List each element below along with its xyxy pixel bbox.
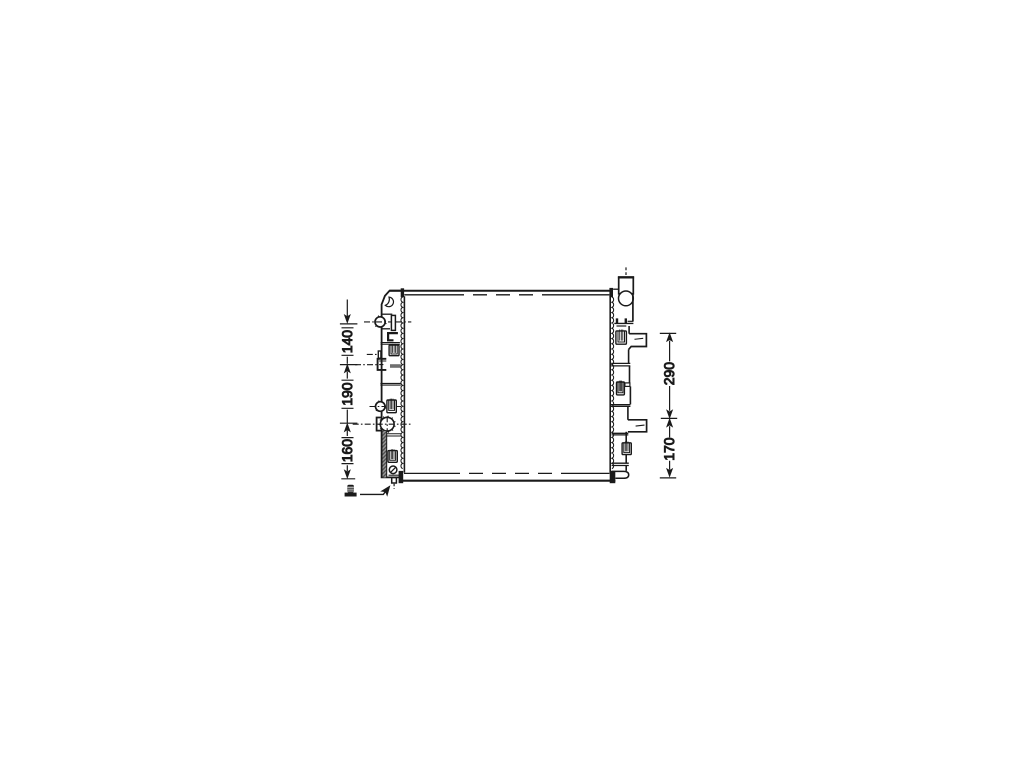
svg-text:190: 190	[339, 382, 355, 406]
svg-text:290: 290	[661, 362, 677, 386]
svg-text:160: 160	[339, 439, 355, 463]
svg-text:170: 170	[661, 437, 677, 461]
svg-text:140: 140	[339, 330, 355, 354]
